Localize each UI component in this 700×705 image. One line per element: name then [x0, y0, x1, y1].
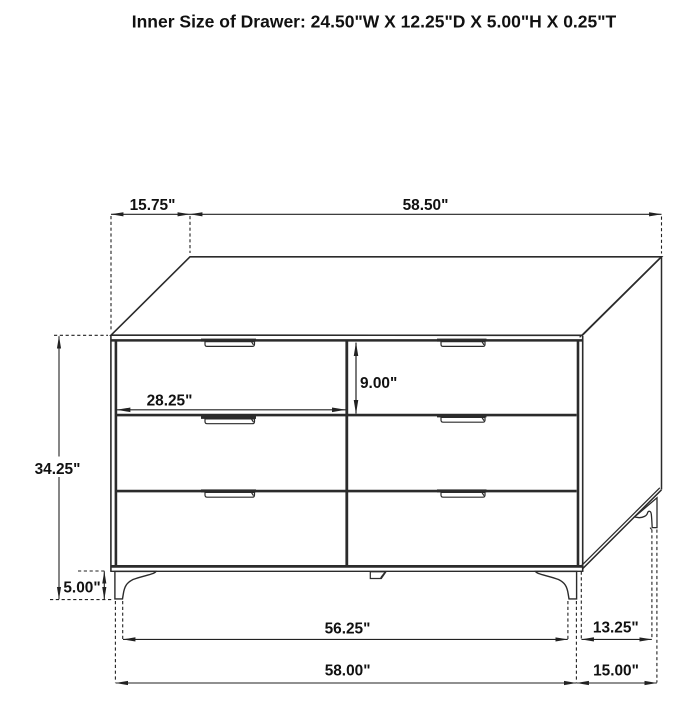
svg-text:9.00": 9.00"	[360, 375, 397, 392]
svg-text:58.50": 58.50"	[403, 197, 449, 214]
svg-text:58.00": 58.00"	[325, 663, 371, 680]
svg-text:56.25": 56.25"	[325, 621, 371, 638]
svg-text:15.00": 15.00"	[593, 663, 639, 680]
svg-text:13.25": 13.25"	[593, 620, 639, 637]
svg-text:34.25": 34.25"	[35, 461, 81, 478]
svg-text:5.00": 5.00"	[63, 579, 100, 596]
svg-text:Inner Size of Drawer: 24.50"W: Inner Size of Drawer: 24.50"W X 12.25"D …	[132, 12, 617, 32]
svg-text:28.25": 28.25"	[147, 393, 193, 410]
svg-text:15.75": 15.75"	[130, 197, 176, 214]
